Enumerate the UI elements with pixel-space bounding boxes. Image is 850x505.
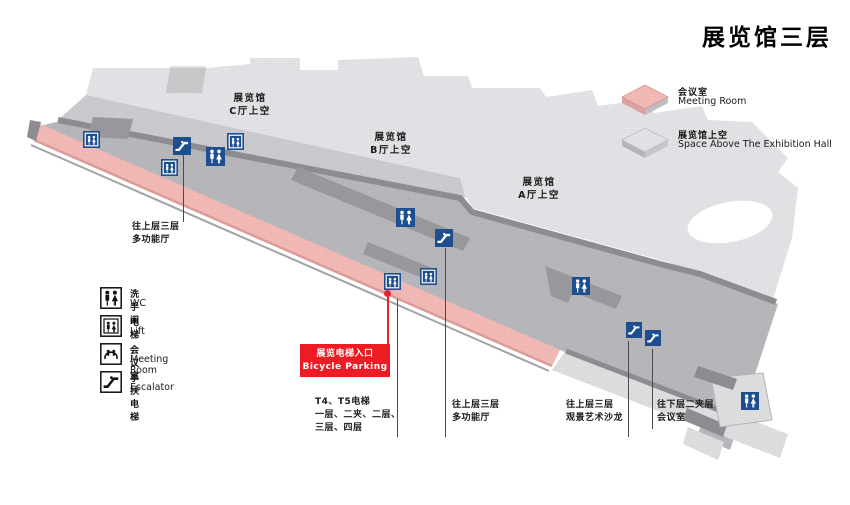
note-art-salon: 往上层三层 观景艺术沙龙 [566, 399, 623, 425]
note-line: 多功能厅 [132, 234, 180, 247]
legend-lift-en: Lift [130, 326, 145, 337]
note-line: 往上层三层 [452, 399, 500, 412]
meeting-room-swatch-icon [618, 78, 672, 118]
lift-icon [100, 315, 122, 337]
red-leader-line [387, 296, 389, 344]
escalator-marker-icon [173, 137, 191, 155]
leader-line [183, 154, 184, 222]
lift-marker-icon [420, 268, 437, 285]
hall-label-c: 展览馆 C厅上空 [210, 92, 290, 118]
hall-label-a: 展览馆 A厅上空 [499, 176, 579, 202]
escalator-icon [100, 371, 122, 393]
note-upper-left: 往上层三层 多功能厅 [132, 221, 180, 247]
lift-marker-icon [227, 133, 244, 150]
note-line: 往上层三层 [132, 221, 180, 234]
hall-label-line: 展览馆 [351, 131, 431, 144]
red-pin [384, 290, 391, 297]
leader-line [628, 341, 629, 437]
lift-marker-icon [83, 131, 100, 148]
slab-roof-block [166, 68, 206, 93]
note-line: 往上层三层 [566, 399, 623, 412]
floor-plan-drawing [0, 0, 850, 505]
legend-hall-space-en: Space Above The Exhibition Hall [678, 139, 832, 150]
wc-marker-icon [741, 392, 759, 410]
wc-marker-icon [572, 277, 590, 295]
elevator-entrance-callout: 展览电梯入口 Bicycle Parking [300, 344, 390, 377]
legend-escalator-zh: 手扶电梯 [130, 371, 140, 423]
hall-label-line: 展览馆 [499, 176, 579, 189]
escalator-marker-icon [435, 229, 453, 247]
floor-plan-page: 展览馆三层 展览馆 C厅上空 展览馆 B厅上空 展览馆 A厅上空 往上层三层 多… [0, 0, 850, 505]
hall-label-line: B厅上空 [351, 144, 431, 157]
note-line: 一层、二夹、二层、 [315, 409, 401, 422]
wc-icon [100, 287, 122, 309]
lift-marker-icon [384, 273, 401, 290]
hall-space-swatch-icon [618, 121, 672, 161]
meeting-room-icon [100, 343, 122, 365]
escalator-marker-icon [626, 322, 642, 338]
note-line: T4、T5电梯 [315, 396, 401, 409]
lift-marker-icon [161, 159, 178, 176]
note-line: 会议室 [657, 412, 714, 425]
note-mezzanine-meeting: 往下层二夹层 会议室 [657, 399, 714, 425]
note-line: 往下层二夹层 [657, 399, 714, 412]
escalator-marker-icon [645, 330, 661, 346]
note-line: 观景艺术沙龙 [566, 412, 623, 425]
hall-label-b: 展览馆 B厅上空 [351, 131, 431, 157]
wc-marker-icon [206, 147, 225, 166]
legend-wc-en: WC [130, 298, 146, 309]
callout-line: 展览电梯入口 [300, 348, 390, 361]
hall-label-line: A厅上空 [499, 189, 579, 202]
leader-line [445, 248, 446, 437]
hall-label-line: 展览馆 [210, 92, 290, 105]
leader-line [652, 349, 653, 429]
legend-meeting-room-en: Meeting Room [678, 96, 746, 107]
legend-escalator-en: Escalator [130, 382, 174, 393]
wc-marker-icon [396, 208, 415, 227]
hall-label-line: C厅上空 [210, 105, 290, 118]
page-title: 展览馆三层 [702, 18, 832, 52]
callout-line: Bicycle Parking [300, 361, 390, 374]
note-t4t5: T4、T5电梯 一层、二夹、二层、 三层、四层 [315, 396, 401, 435]
note-multi-hall: 往上层三层 多功能厅 [452, 399, 500, 425]
note-line: 三层、四层 [315, 422, 401, 435]
note-line: 多功能厅 [452, 412, 500, 425]
